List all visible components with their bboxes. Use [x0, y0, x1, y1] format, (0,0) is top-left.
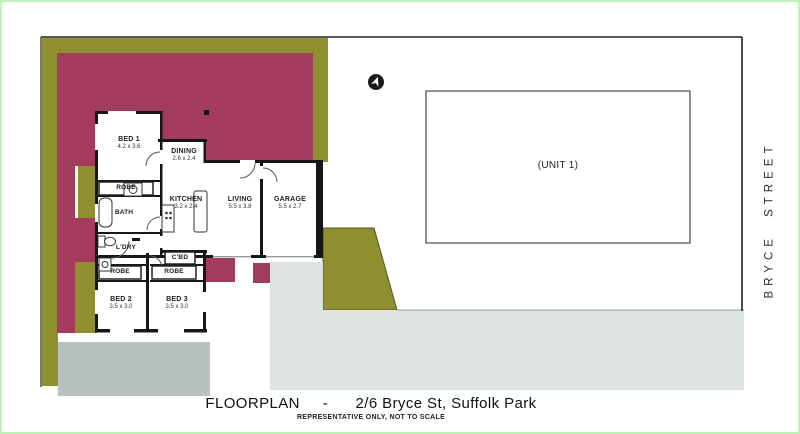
north-compass-icon [368, 74, 384, 90]
window-bed3-right [203, 292, 206, 312]
room-label-dining: DINING 2.6 x 2.4 [171, 148, 197, 163]
door-gap-garage [260, 166, 263, 179]
wall-wc-top [97, 232, 162, 234]
room-label-garage: GARAGE 5.5 x 2.7 [274, 196, 306, 211]
wall-robe3-bottom [150, 280, 205, 282]
label-cbd-bed3: C'BD [172, 254, 188, 261]
door-gap-bed1 [160, 150, 163, 164]
room-label-bed2: BED 2 3.5 x 3.0 [109, 296, 132, 311]
window-bath-left [95, 204, 98, 222]
street-name-text: BRYCE STREET [764, 142, 776, 299]
wall-robe2-bottom [97, 280, 147, 282]
wall-dining-top [158, 139, 207, 142]
room-dims-living: 5.5 x 3.8 [228, 204, 253, 211]
door-gap-entry [240, 160, 255, 163]
olive-top-band [42, 38, 328, 53]
window-bed1-top [108, 111, 136, 114]
window-bed1-left [95, 124, 98, 150]
trough-basin [102, 262, 108, 268]
room-name-dining: DINING [171, 148, 197, 156]
wall-bed-divider [146, 253, 149, 332]
room-dims-bed2: 3.5 x 3.0 [109, 304, 132, 311]
floorplan-page: BED 1 4.2 x 3.6 DINING 2.6 x 2.4 KITCHEN… [0, 0, 800, 434]
bathtub [99, 198, 112, 227]
maroon-left-strip [57, 160, 75, 333]
room-name-bed2: BED 2 [109, 296, 132, 304]
wall-bed1-right [160, 111, 163, 181]
room-name-kitchen: KITCHEN [170, 196, 203, 204]
olive-right-band [313, 38, 328, 162]
room-dims-kitchen: 3.2 x 2.4 [170, 204, 203, 211]
footer-disclaimer: REPRESENTATIVE ONLY, NOT TO SCALE [0, 414, 742, 421]
patio-area [58, 342, 210, 396]
room-dims-dining: 2.6 x 2.4 [171, 156, 197, 163]
wall-dining-jog [204, 139, 207, 163]
room-label-bed3: BED 3 3.5 x 3.0 [165, 296, 188, 311]
olive-strip-bed2 [73, 262, 97, 333]
label-laundry: L'DRY [116, 244, 136, 251]
room-label-bed1: BED 1 4.2 x 3.6 [117, 136, 140, 151]
olive-trapezoid-garden [323, 228, 397, 310]
toilet-tank [98, 236, 105, 247]
olive-left-band [42, 38, 58, 386]
window-bed3-bottom [158, 329, 184, 333]
toilet-bowl [105, 237, 116, 245]
wall-wing-right [203, 250, 206, 332]
unit1-label: (UNIT 1) [538, 160, 579, 172]
room-dims-bed3: 3.5 x 3.0 [165, 304, 188, 311]
room-name-living: LIVING [228, 196, 253, 204]
room-label-living: LIVING 5.5 x 3.8 [228, 196, 253, 211]
window-bed2-bottom [110, 329, 134, 333]
wall-garage-right-thick [316, 160, 323, 258]
label-robe-bed3: ROBE [164, 268, 184, 275]
label-robe-bed1: ROBE [116, 184, 136, 191]
street-name: BRYCE STREET [741, 80, 798, 360]
room-dims-bed1: 4.2 x 3.6 [117, 144, 140, 151]
wall-left-lower [95, 238, 98, 332]
room-label-kitchen: KITCHEN 3.2 x 2.4 [170, 196, 203, 211]
room-dims-garage: 5.5 x 2.7 [274, 204, 306, 211]
room-name-bed3: BED 3 [165, 296, 188, 304]
door-gap-wc [160, 236, 163, 248]
label-bath: BATH [115, 209, 133, 216]
label-robe-bed2: ROBE [110, 268, 130, 275]
window-bed2-left [95, 290, 98, 314]
room-name-bed1: BED 1 [117, 136, 140, 144]
room-name-garage: GARAGE [274, 196, 306, 204]
footer-caption: FLOORPLAN - 2/6 Bryce St, Suffolk Park [0, 395, 742, 412]
site-plan-drawing [0, 0, 800, 434]
corner-pillar [204, 110, 209, 115]
wall-living-garage-top [205, 160, 323, 163]
